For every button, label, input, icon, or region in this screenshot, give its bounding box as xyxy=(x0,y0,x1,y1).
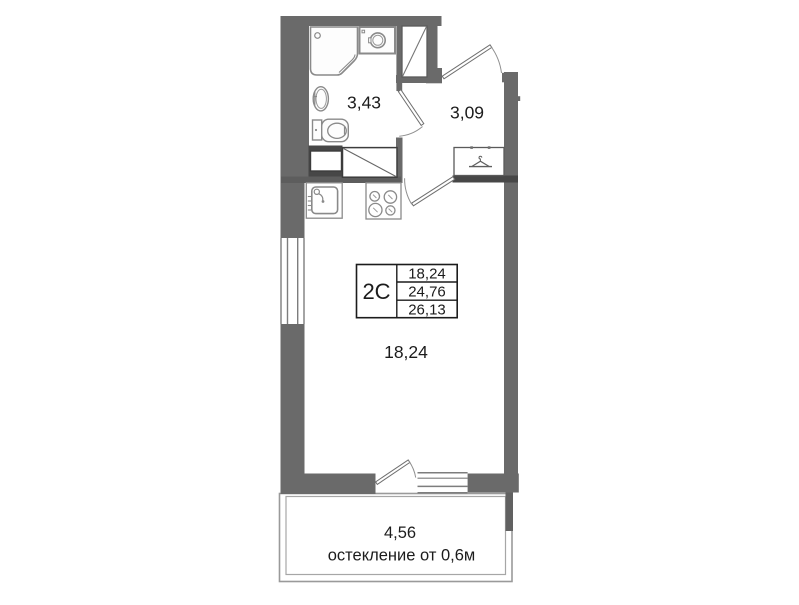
svg-text:3,09: 3,09 xyxy=(450,103,484,123)
svg-text:2C: 2C xyxy=(362,279,390,304)
svg-text:3,43: 3,43 xyxy=(347,93,381,113)
svg-text:24,76: 24,76 xyxy=(408,284,446,301)
svg-text:18,24: 18,24 xyxy=(384,342,428,362)
svg-text:26,13: 26,13 xyxy=(408,302,446,319)
svg-text:18,24: 18,24 xyxy=(408,266,446,283)
svg-text:4,56: 4,56 xyxy=(384,524,416,542)
svg-text:остекление от 0,6м: остекление от 0,6м xyxy=(328,547,476,565)
